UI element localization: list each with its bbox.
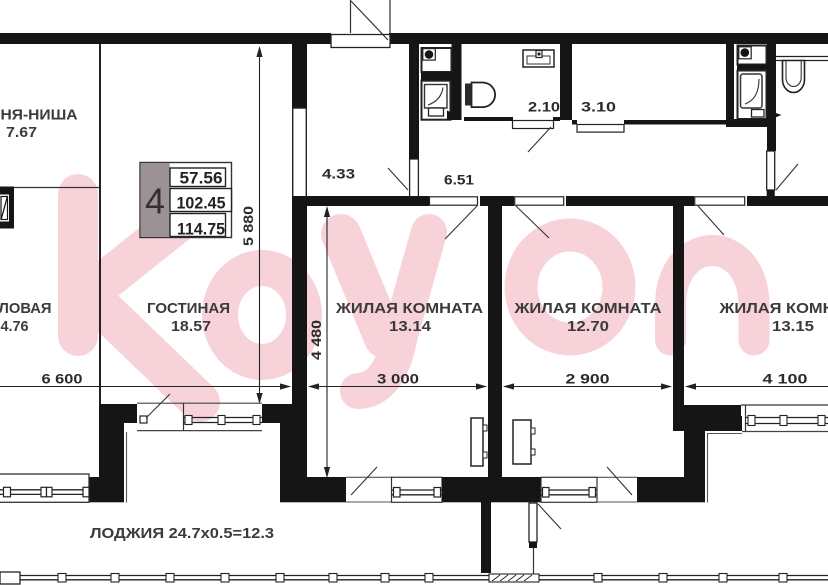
svg-text:7.67: 7.67 — [6, 124, 37, 141]
svg-text:18.57: 18.57 — [171, 318, 211, 335]
svg-text:4 100: 4 100 — [763, 371, 808, 387]
svg-text:3 000: 3 000 — [377, 371, 419, 387]
svg-text:13.14: 13.14 — [389, 318, 432, 335]
svg-text:114.75: 114.75 — [177, 220, 225, 239]
svg-text:СТОЛОВАЯ: СТОЛОВАЯ — [0, 300, 52, 317]
svg-text:НЯ-НИША: НЯ-НИША — [1, 107, 78, 124]
svg-text:13.15: 13.15 — [772, 318, 814, 335]
svg-text:ЛОДЖИЯ 24.7х0.5=12.3: ЛОДЖИЯ 24.7х0.5=12.3 — [90, 525, 274, 542]
svg-text:5 880: 5 880 — [240, 206, 256, 246]
svg-text:57.56: 57.56 — [180, 169, 223, 188]
svg-text:4.76: 4.76 — [1, 318, 29, 335]
svg-text:6.51: 6.51 — [444, 173, 475, 188]
svg-text:12.70: 12.70 — [567, 318, 609, 335]
svg-text:2 900: 2 900 — [566, 371, 610, 387]
svg-text:ЖИЛАЯ КОМНАТА: ЖИЛАЯ КОМНАТА — [718, 300, 828, 317]
svg-text:4: 4 — [145, 181, 165, 222]
svg-text:4 480: 4 480 — [308, 320, 324, 360]
svg-text:6 600: 6 600 — [42, 371, 83, 387]
svg-text:102.45: 102.45 — [177, 194, 226, 213]
svg-text:2.10: 2.10 — [528, 100, 560, 115]
svg-text:3.10: 3.10 — [581, 100, 616, 115]
svg-text:ГОСТИНАЯ: ГОСТИНАЯ — [147, 300, 230, 317]
svg-text:4.33: 4.33 — [322, 167, 356, 182]
svg-text:ЖИЛАЯ КОМНАТА: ЖИЛАЯ КОМНАТА — [513, 300, 661, 317]
svg-text:ЖИЛАЯ КОМНАТА: ЖИЛАЯ КОМНАТА — [335, 300, 483, 317]
